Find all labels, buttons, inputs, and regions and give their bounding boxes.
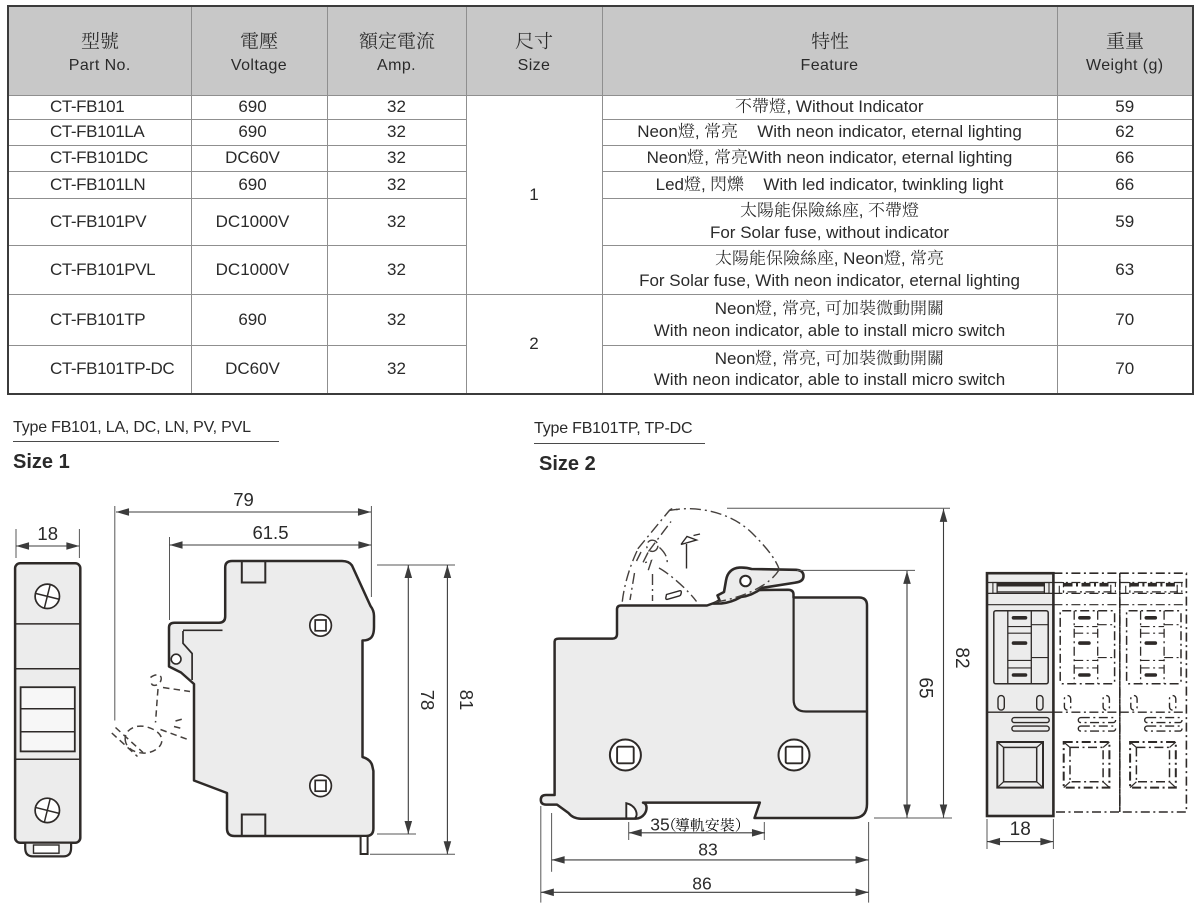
- svg-text:35: 35: [650, 815, 669, 835]
- svg-text:78: 78: [417, 690, 438, 711]
- svg-text:65: 65: [915, 677, 936, 698]
- svg-text:18: 18: [37, 523, 58, 544]
- svg-text:61.5: 61.5: [252, 522, 288, 543]
- svg-text:18: 18: [1010, 819, 1031, 840]
- svg-text:81: 81: [456, 690, 477, 711]
- svg-text:82: 82: [951, 647, 972, 668]
- svg-text:79: 79: [233, 490, 254, 510]
- svg-text:83: 83: [698, 840, 717, 860]
- svg-text:86: 86: [692, 874, 711, 894]
